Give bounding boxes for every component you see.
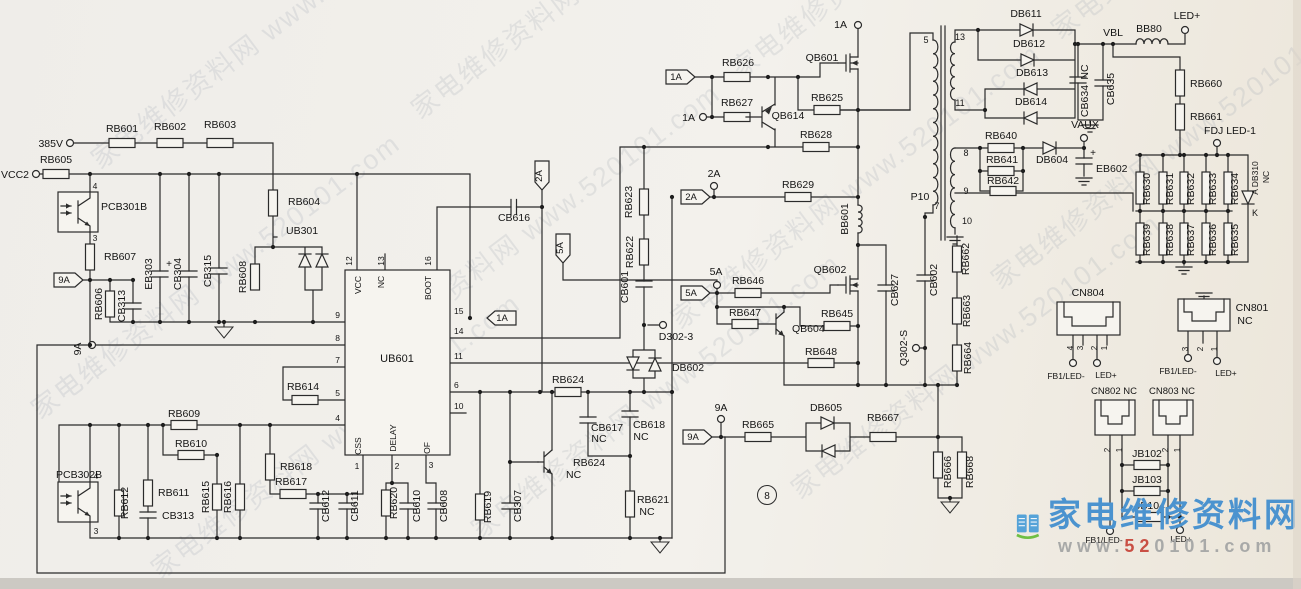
- label-rb605: RB605: [40, 154, 72, 166]
- resistor-RB648: [808, 359, 834, 368]
- label-cn801-led: LED+: [1215, 368, 1237, 378]
- label-rb611: RB611: [158, 487, 189, 499]
- label-flag-9a-top: 9A: [58, 275, 70, 286]
- label-ic-pin12: 12: [344, 256, 354, 266]
- label-rb668: RB668: [964, 456, 976, 488]
- resistor-RB607: [86, 244, 95, 270]
- label-cb616: CB616: [498, 212, 530, 224]
- label-rb625: RB625: [811, 92, 843, 104]
- label-rb661: RB661: [1190, 111, 1222, 123]
- connector-CN801: [1178, 299, 1230, 331]
- label-rb642: RB642: [987, 175, 1019, 187]
- terminal-2A: [711, 183, 718, 190]
- connector-CN804: [1057, 302, 1120, 335]
- label-db604: DB604: [1036, 154, 1068, 166]
- resistor-RB661: [1176, 104, 1185, 130]
- logo-site-url: www.520101.com: [1058, 536, 1300, 557]
- label-ic-nc: NC: [376, 276, 386, 288]
- label-rb616: RB616: [222, 481, 234, 513]
- label-qb624-label: RB624: [573, 457, 605, 469]
- diode-DB611: [1020, 24, 1033, 36]
- label-ub601: UB601: [380, 353, 414, 365]
- scan-bottom-edge: [0, 578, 1301, 589]
- label-net-5a: 5A: [710, 266, 723, 278]
- label-cb634-nc: NC: [1079, 64, 1091, 80]
- label-net-q302-s: Q302-S: [898, 330, 910, 366]
- label-rb640: RB640: [985, 130, 1017, 142]
- logo-site-name: 家电维修资料网: [1048, 497, 1300, 533]
- label-db310-k: K: [1252, 208, 1258, 218]
- resistor-RB603: [207, 139, 233, 148]
- resistor-RB660: [1176, 70, 1185, 96]
- label-rb641: RB641: [986, 154, 1018, 166]
- label-p10: P10: [911, 191, 930, 203]
- terminal-LED-plus-top: [1182, 27, 1189, 34]
- label-rb645: RB645: [821, 308, 853, 320]
- label-rb662: RB662: [960, 243, 972, 275]
- label-cn804-pin3: 3: [1076, 345, 1085, 350]
- resistor-RB642: [990, 187, 1016, 196]
- label-qb624-nc: NC: [566, 469, 582, 481]
- label-cb313-2: CB313: [162, 510, 194, 522]
- label-rb647: RB647: [729, 307, 761, 319]
- resistor-RB617: [280, 490, 306, 499]
- resistor-RB614: [292, 396, 318, 405]
- label-cn801-pin2: 2: [1196, 346, 1205, 351]
- diode-DB604: [1043, 142, 1056, 154]
- label-cb611: CB611: [349, 490, 361, 521]
- label-ic-pin1: 1: [355, 461, 360, 471]
- label-db602: DB602: [672, 362, 704, 374]
- diode-UB301-a: [299, 254, 311, 267]
- label-cb315: CB315: [202, 255, 214, 287]
- label-ic-pin4: 4: [335, 413, 340, 423]
- label-flag-1a: 1A: [670, 72, 682, 83]
- ground-symbol: [651, 542, 669, 553]
- label-net-vaux: VAUX: [1071, 119, 1099, 131]
- label-cb627: CB627: [889, 274, 901, 306]
- label-rb648: RB648: [805, 346, 837, 358]
- inductor-BB601-coil: [858, 205, 862, 233]
- label-opto2-pin4: 4: [94, 471, 99, 481]
- label-ic-vcc: VCC: [353, 276, 363, 294]
- label-rb601: RB601: [106, 123, 138, 135]
- terminal-9A-mid: [718, 416, 725, 423]
- label-rb664: RB664: [962, 342, 974, 374]
- label-ic-of: OF: [422, 442, 432, 454]
- terminal-VCC2: [33, 171, 40, 178]
- label-rb604: RB604: [288, 196, 320, 208]
- label-cb618: CB618: [633, 419, 665, 431]
- label-cb313-1: CB313: [116, 290, 128, 322]
- resistor-RB622: [640, 239, 649, 265]
- label-cn802: CN802 NC: [1091, 386, 1137, 397]
- label-rb607: RB607: [104, 251, 136, 263]
- label-net-vcc2: VCC2: [1, 169, 29, 181]
- optocoupler-PCB302B: [58, 482, 98, 522]
- label-cn802-pin1: 1: [1115, 447, 1124, 452]
- label-rb618: RB618: [280, 461, 312, 473]
- resistor-RB609: [171, 421, 197, 430]
- label-ic-css: CSS: [353, 437, 363, 455]
- label-net-385v: 385V: [38, 138, 63, 150]
- resistor-RB628: [803, 143, 829, 152]
- terminal-CN801-FB1: [1185, 355, 1192, 362]
- label-net-1a-top: 1A: [834, 19, 847, 31]
- label-pcb301b: PCB301B: [101, 201, 147, 213]
- capacitor-CB601: [636, 281, 652, 287]
- label-db611: DB611: [1010, 8, 1041, 20]
- inductor-BB80-coil: [1136, 39, 1168, 44]
- logo-url-suffix: 0101.com: [1154, 536, 1276, 556]
- label-rb639: RB639: [1141, 224, 1153, 256]
- resistor-RB647: [732, 320, 758, 329]
- label-flag-5a-down: 5A: [555, 242, 566, 254]
- label-cn801-pin1: 1: [1210, 346, 1219, 351]
- label-rb624: RB624: [552, 374, 584, 386]
- label-rb637: RB637: [1185, 224, 1197, 256]
- label-opto1-pin3: 3: [93, 233, 98, 243]
- label-ic-pin7: 7: [335, 355, 340, 365]
- resistor-RB616: [236, 484, 245, 510]
- label-opto2-pin3: 3: [94, 526, 99, 536]
- label-cn804-pin4: 4: [1066, 345, 1075, 350]
- terminal-5A: [714, 282, 721, 289]
- optocoupler-PCB301B: [58, 192, 98, 232]
- ground-symbol: [941, 502, 959, 513]
- scan-right-edge: [1293, 0, 1301, 589]
- resistor-RB665: [745, 433, 771, 442]
- resistor-RB605: [43, 170, 69, 179]
- logo-url-accent: 52: [1124, 536, 1154, 556]
- label-rb622: RB622: [624, 236, 636, 268]
- terminal-1A-top: [855, 22, 862, 29]
- diode-DB605-a: [821, 417, 834, 429]
- resistor-RB625: [814, 106, 840, 115]
- transformer-secondary-top-coil: [951, 42, 956, 100]
- diode-UB301-b: [316, 254, 328, 267]
- label-qb614: QB614: [772, 110, 805, 122]
- terminal-CN804-FB1: [1070, 360, 1077, 367]
- watermark-text: 家电维修资料网 www.520101.com: [86, 0, 466, 175]
- label-cn802-pin2: 2: [1103, 447, 1112, 452]
- label-cb610: CB610: [411, 490, 423, 522]
- terminal-385V: [67, 140, 74, 147]
- resistor-RB601: [109, 139, 135, 148]
- label-net-led-plus-top: LED+: [1174, 10, 1201, 22]
- resistor-RB640: [988, 144, 1014, 153]
- label-rb666: RB666: [942, 456, 954, 488]
- label-rb636: RB636: [1207, 224, 1219, 256]
- ground-symbol: [215, 327, 233, 338]
- resistor-RB608: [251, 264, 260, 290]
- label-cb307: CB307: [512, 490, 524, 522]
- label-jb102: JB102: [1132, 448, 1162, 460]
- terminal-FDJ-LED-1: [1214, 140, 1221, 147]
- resistor-RB604: [269, 190, 278, 216]
- label-db614: DB614: [1015, 96, 1047, 108]
- label-cb634: CB634: [1079, 85, 1091, 117]
- label-eb602: EB602: [1096, 163, 1128, 175]
- resistor-RB610: [178, 451, 204, 460]
- label-flag-5a: 5A: [685, 288, 697, 299]
- label-rb608: RB608: [237, 261, 249, 293]
- label-qb604: QB604: [792, 323, 825, 335]
- label-net-fdj-led1: FDJ LED-1: [1204, 125, 1256, 137]
- resistor-RB624: [555, 388, 581, 397]
- label-cb617-nc: NC: [591, 433, 607, 445]
- label-rb663: RB663: [961, 295, 973, 327]
- label-cn803: CN803 NC: [1149, 386, 1195, 397]
- label-rb667: RB667: [867, 412, 899, 424]
- logo-url-prefix: www.: [1058, 536, 1124, 556]
- label-rb630: RB630: [1141, 173, 1153, 205]
- label-flag-2a-down: 2A: [534, 170, 545, 182]
- label-rb619: RB619: [482, 491, 494, 523]
- label-rb620: RB620: [388, 487, 400, 519]
- label-cb635: CB635: [1105, 73, 1117, 105]
- label-ic-delay: DELAY: [388, 424, 398, 452]
- connector-CN802: [1095, 400, 1135, 435]
- label-xfmr-pin7: 7: [934, 201, 939, 211]
- diode-DB614: [1024, 112, 1037, 124]
- transformer-secondary-bottom-coil: [951, 148, 956, 228]
- label-bb80: BB80: [1136, 23, 1162, 35]
- label-rb638: RB638: [1164, 224, 1176, 256]
- resistor-RB606: [106, 291, 115, 317]
- resistor-RB664: [953, 345, 962, 371]
- label-rb623: RB623: [623, 186, 635, 218]
- label-net-9a-left: 9A: [72, 343, 84, 356]
- label-xfmr-pin5: 5: [923, 35, 928, 45]
- label-rb635: RB635: [1229, 224, 1241, 256]
- diode-DB602-b: [649, 358, 661, 371]
- mosfet-QB601: [838, 54, 858, 72]
- terminal-Q302-S: [913, 345, 920, 352]
- ground-symbol: [1076, 178, 1092, 185]
- label-flag-2a: 2A: [685, 192, 697, 203]
- ground-symbol: [1176, 267, 1192, 274]
- label-rb602: RB602: [154, 121, 186, 133]
- watermark-text: 家电维修资料网 www.520101.com: [726, 0, 1106, 85]
- label-rb617: RB617: [275, 476, 307, 488]
- terminal-CN801-LED: [1214, 358, 1221, 365]
- label-rb621: RB621: [637, 494, 669, 506]
- label-opto1-pin4: 4: [93, 181, 98, 191]
- label-cn804-pin1: 1: [1100, 345, 1109, 350]
- label-ic-boot: BOOT: [423, 276, 433, 300]
- resistor-RB618: [266, 454, 275, 480]
- label-cn803-pin1: 1: [1173, 447, 1182, 452]
- label-cb304: CB304: [172, 258, 184, 290]
- resistor-RB602: [157, 139, 183, 148]
- label-cn801-fb1: FB1/LED-: [1159, 366, 1196, 376]
- schematic-scan: 家电维修资料网 www.520101.com 家电维修资料网 www.52010…: [0, 0, 1301, 589]
- label-rb612: RB612: [119, 487, 131, 519]
- label-xfmr-pin13: 13: [955, 32, 965, 42]
- label-net-d302-3: D302-3: [659, 331, 694, 343]
- label-rb633: RB633: [1207, 173, 1219, 205]
- label-flag-9a-mid: 9A: [687, 432, 699, 443]
- open-book-icon: [1016, 497, 1040, 557]
- label-rb628: RB628: [800, 129, 832, 141]
- resistor-RB626: [724, 73, 750, 82]
- label-net-vbl: VBL: [1103, 27, 1123, 39]
- label-ic-pin10: 10: [454, 401, 464, 411]
- capacitor-CB313-2: [140, 512, 156, 518]
- mosfet-QB602: [838, 276, 858, 294]
- label-rb665: RB665: [742, 419, 774, 431]
- terminal-VAUX: [1081, 135, 1088, 142]
- label-db612: DB612: [1013, 38, 1045, 50]
- label-cb612: CB612: [320, 490, 332, 522]
- resistor-RB623: [640, 189, 649, 215]
- label-rb609: RB609: [168, 408, 200, 420]
- label-rb603: RB603: [204, 119, 236, 131]
- label-xfmr-pin9: 9: [963, 186, 968, 196]
- label-rb632: RB632: [1185, 173, 1197, 205]
- diode-DB613: [1024, 83, 1037, 95]
- terminal-CN804-LED: [1094, 360, 1101, 367]
- resistor-RB615: [213, 484, 222, 510]
- label-ic-pin13: 13: [376, 256, 386, 266]
- label-ic-pin3: 3: [429, 460, 434, 470]
- label-qb602: QB602: [814, 264, 847, 276]
- label-ic-pin5: 5: [335, 388, 340, 398]
- label-cb601: CB601: [619, 271, 631, 303]
- label-db310-nc: NC: [1261, 171, 1271, 183]
- label-db613: DB613: [1016, 67, 1048, 79]
- watermark-logo: 家电维修资料网 www.520101.com: [1016, 497, 1300, 557]
- label-xfmr-pin11: 11: [955, 98, 964, 108]
- label-rb660: RB660: [1190, 78, 1222, 90]
- connector-CN803: [1153, 400, 1193, 435]
- label-cb602: CB602: [928, 264, 940, 296]
- label-rb614: RB614: [287, 381, 319, 393]
- label-cn801: CN801: [1236, 302, 1269, 314]
- resistor-RB667: [870, 433, 896, 442]
- jumper-JB103: [1134, 487, 1160, 496]
- label-cn801-nc: NC: [1237, 315, 1253, 327]
- terminal-1A-gate: [700, 114, 707, 121]
- label-ic-pin11: 11: [454, 351, 463, 361]
- label-cn804-fb1: FB1/LED-: [1047, 371, 1084, 381]
- label-ic-pin15: 15: [454, 306, 464, 316]
- resistor-RB621: [626, 491, 635, 517]
- label-rb610: RB610: [175, 438, 207, 450]
- resistor-RB645: [824, 322, 850, 331]
- label-rb631: RB631: [1164, 173, 1176, 205]
- label-net-2a: 2A: [708, 168, 721, 180]
- terminal-D302-3: [660, 322, 667, 329]
- label-cb608: CB608: [438, 490, 450, 522]
- label-ic-pin9: 9: [335, 310, 340, 320]
- label-db605: DB605: [810, 402, 842, 414]
- label-cn801-pin3: 3: [1181, 346, 1190, 351]
- label-cn804-led: LED+: [1095, 370, 1117, 380]
- label-xfmr-pin10: 10: [962, 216, 972, 226]
- label-ic-pin8: 8: [335, 333, 340, 343]
- label-rb634: RB634: [1229, 173, 1241, 205]
- label-qb601: QB601: [806, 52, 839, 64]
- resistor-RB646: [735, 289, 761, 298]
- label-rb627: RB627: [721, 97, 753, 109]
- label-db310-a: A DB310: [1250, 161, 1260, 195]
- jumper-JB102: [1134, 461, 1160, 470]
- label-rb621-nc: NC: [639, 506, 655, 518]
- label-ic-pin2: 2: [395, 461, 400, 471]
- label-eb303: EB303: [143, 258, 155, 290]
- label-cb618-nc: NC: [633, 431, 649, 443]
- label-ic-pin14: 14: [454, 326, 464, 336]
- label-page-marker: 8: [764, 491, 770, 502]
- label-cn804: CN804: [1072, 287, 1105, 299]
- label-cn803-pin2: 2: [1161, 447, 1170, 452]
- label-rb626: RB626: [722, 57, 754, 69]
- label-ub301: UB301: [286, 225, 318, 237]
- label-eb602-plus: +: [1090, 148, 1096, 159]
- label-rb606: RB606: [93, 288, 105, 320]
- label-jb103: JB103: [1132, 474, 1162, 486]
- label-cn804-pin2: 2: [1090, 345, 1099, 350]
- label-net-9a-mid: 9A: [715, 402, 728, 414]
- label-bb601: BB601: [839, 203, 851, 235]
- label-rb646: RB646: [732, 275, 764, 287]
- label-ic-pin16: 16: [423, 256, 433, 266]
- label-flag-1a-pin15: 1A: [496, 313, 508, 324]
- resistor-RB629: [785, 193, 811, 202]
- label-net-1a-gate: 1A: [682, 112, 695, 124]
- label-rb615: RB615: [200, 481, 212, 513]
- label-rb629: RB629: [782, 179, 814, 191]
- label-xfmr-pin8: 8: [963, 148, 968, 158]
- label-ic-pin6: 6: [454, 380, 459, 390]
- watermark-text: 家电维修资料网 www.520101.com: [1046, 0, 1301, 45]
- resistor-RB611: [144, 480, 153, 506]
